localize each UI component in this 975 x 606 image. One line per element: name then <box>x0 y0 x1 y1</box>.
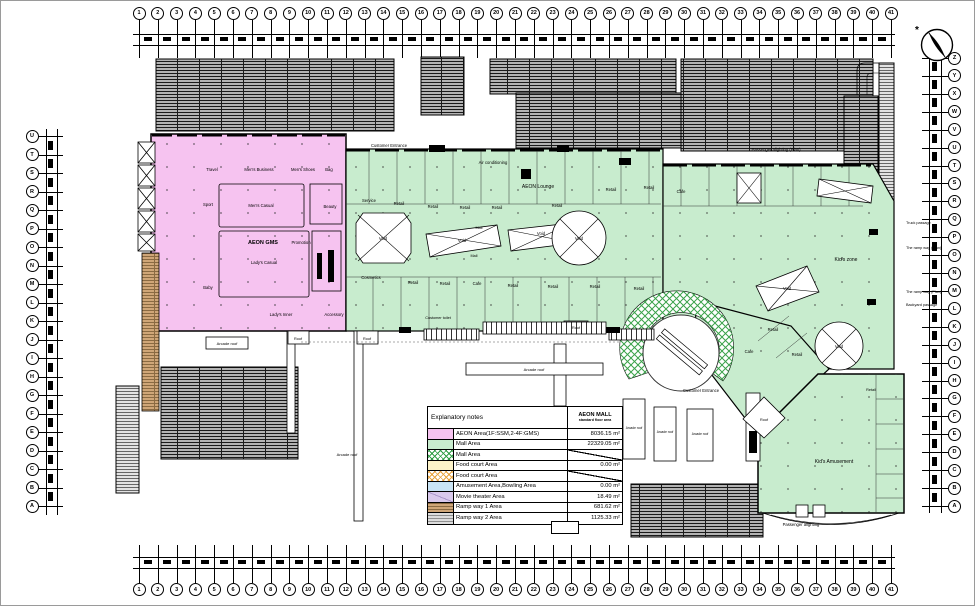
legend-swatch-food-cross <box>428 471 454 481</box>
legend-swatch-ramp2 <box>428 513 454 524</box>
plan-label: Retail <box>792 352 803 357</box>
legend-row: Movie theater Area18.49 m² <box>428 492 622 503</box>
legend-value <box>568 450 622 460</box>
plan-label: The ramp way (Plan) <box>906 290 942 294</box>
roof-top-small <box>421 57 464 115</box>
stair-cores <box>138 142 155 251</box>
legend-row: Mall Area22329.05 m² <box>428 440 622 451</box>
plan-label: Beauty <box>323 204 337 209</box>
legend-swatch-amusement <box>428 482 454 492</box>
legend-label: Amusement Area,Bowling Area <box>454 482 568 492</box>
legend-tab-box <box>551 521 579 534</box>
plan-label: Backyard passage <box>906 303 937 307</box>
legend-value: 8036.15 m² <box>568 429 622 439</box>
legend-row: Mall Area <box>428 450 622 461</box>
plan-label: Bag <box>325 167 333 172</box>
plan-label: Air conditioning <box>479 160 508 165</box>
plan-label: Void <box>458 238 467 243</box>
roof-top-left <box>156 59 394 131</box>
legend-row: Ramp way 2 Area1125.33 m² <box>428 513 622 524</box>
legend-table: Explanatory notes AEON MALL standard flo… <box>427 406 623 525</box>
legend-label: Ramp way 1 Area <box>454 503 568 513</box>
plan-label: Retail <box>634 286 645 291</box>
plan-label: Void <box>537 231 546 236</box>
plan-label: Retail <box>394 201 405 206</box>
svg-text:*: * <box>915 25 919 36</box>
plan-label: Retail <box>644 185 655 190</box>
legend-label: Mall Area <box>454 450 568 460</box>
plan-label: Promotion <box>291 240 311 245</box>
legend-swatch-food <box>428 461 454 471</box>
plan-label: Arcade roof <box>524 367 546 372</box>
roof-bottom-right <box>631 484 763 537</box>
plan-label: AEON Lounge <box>522 184 554 190</box>
legend-value: 0.00 m² <box>568 482 622 492</box>
plan-label: The ramp way (Plan) <box>906 246 942 250</box>
plan-label: Arcade roof <box>217 341 239 346</box>
plan-label: Void <box>783 286 792 291</box>
plan-label: Customer Entrance <box>683 388 720 393</box>
plan-label: Arcade roof <box>692 432 709 436</box>
plan-label: Retail <box>590 284 601 289</box>
plan-label: Retail <box>428 204 439 209</box>
plan-label: Retail <box>508 283 519 288</box>
legend-row: Amusement Area,Bowling Area0.00 m² <box>428 482 622 493</box>
legend-swatch-aeon <box>428 429 454 439</box>
plan-label: Travel <box>206 167 218 172</box>
plan-label: Men's Shoes <box>291 167 315 172</box>
plan-label: Lady's Inner <box>270 312 293 317</box>
plan-label: Men's Casual <box>248 203 273 208</box>
plan-label: Service <box>362 198 377 203</box>
plan-label: Kid's Amusement <box>815 459 854 465</box>
plan-label: Mall <box>476 226 483 230</box>
plan-label: Retail <box>552 203 563 208</box>
legend-swatch-mall <box>428 440 454 450</box>
plan-label: Customer toilet <box>425 316 451 320</box>
plan-label: Mall <box>471 254 478 258</box>
plan-label: Kid's zone <box>835 257 858 263</box>
north-compass-icon: * <box>913 21 959 67</box>
roof-top-mid-low <box>516 93 686 148</box>
legend-label: AEON Area(1F:SSM,2-4F:GMS) <box>454 429 568 439</box>
floor-plan-sheet: TravelMen's BusinessMen's ShoesBagSportM… <box>0 0 975 606</box>
plan-label: Cosmetics <box>361 275 381 280</box>
legend-title: Explanatory notes <box>428 407 568 428</box>
plan-label: Void <box>379 236 388 241</box>
plan-label: Retail <box>492 205 503 210</box>
legend-swatch-ramp1 <box>428 503 454 513</box>
plan-label: Retail <box>548 284 559 289</box>
roof-bottom-left <box>161 367 298 459</box>
plan-label: Lady's Casual <box>251 260 277 265</box>
legend-row: Food court Area <box>428 471 622 482</box>
legend-label: Food court Area <box>454 471 568 481</box>
plan-label: Roof <box>294 337 303 341</box>
plan-label: Baby <box>203 285 213 290</box>
legend-label: Movie theater Area <box>454 492 568 502</box>
legend-value: 18.49 m² <box>568 492 622 502</box>
plan-label: Cafe <box>473 281 483 286</box>
plan-label: Arcade roof <box>657 430 674 434</box>
plan-label: Arcade roof <box>337 452 359 457</box>
legend-swatch-movie <box>428 492 454 502</box>
plan-label: Passenger alighting <box>783 522 820 527</box>
plan-label: Men's Business <box>244 167 273 172</box>
bus-canopy-2 <box>654 407 676 461</box>
legend-value: 681.62 m² <box>568 503 622 513</box>
aeon-building <box>151 134 346 331</box>
plan-label: Sport <box>203 202 214 207</box>
legend-header: Explanatory notes AEON MALL standard flo… <box>428 407 622 429</box>
plan-label: AEON GMS <box>248 240 278 246</box>
plan-label: Retail <box>408 280 419 285</box>
plan-label: Retail <box>866 388 876 392</box>
plan-label: Roof <box>363 337 372 341</box>
plan-label: Customer Entrance <box>371 143 408 148</box>
plan-label: Void <box>575 236 584 241</box>
legend-area-header: AEON MALL standard floor area <box>568 407 622 428</box>
legend-label: Food court Area <box>454 461 568 471</box>
plan-label: Passenger alighting (Plan) <box>751 147 801 152</box>
plan-label: Accessory <box>324 312 344 317</box>
legend-label: Mall Area <box>454 440 568 450</box>
plan-label: Cafe <box>745 349 755 354</box>
plan-label: Roof <box>760 418 769 422</box>
plan-label: Roof <box>572 326 581 330</box>
plan-label: Void <box>835 344 844 349</box>
legend-value: 0.00 m² <box>568 461 622 471</box>
legend-rows: AEON Area(1F:SSM,2-4F:GMS)8036.15 m²Mall… <box>428 429 622 524</box>
ramp-way-2-strip-left <box>116 386 139 493</box>
plan-label: Cafe <box>677 189 687 194</box>
roof-top-mid <box>490 59 676 94</box>
legend-row: AEON Area(1F:SSM,2-4F:GMS)8036.15 m² <box>428 429 622 440</box>
plan-label: Retail <box>440 281 451 286</box>
plan-label: Arcade roof <box>626 426 643 430</box>
plan-label: Retail <box>460 205 471 210</box>
legend-row: Food court Area0.00 m² <box>428 461 622 472</box>
plan-label: Retail <box>606 187 617 192</box>
plan-label: Truck passage <box>906 221 931 225</box>
legend-value: 22329.05 m² <box>568 440 622 450</box>
legend-swatch-mall-cross <box>428 450 454 460</box>
legend-row: Ramp way 1 Area681.62 m² <box>428 503 622 514</box>
legend-value <box>568 471 622 481</box>
plan-label: Retail <box>768 327 779 332</box>
ramp-way-1 <box>142 253 159 411</box>
